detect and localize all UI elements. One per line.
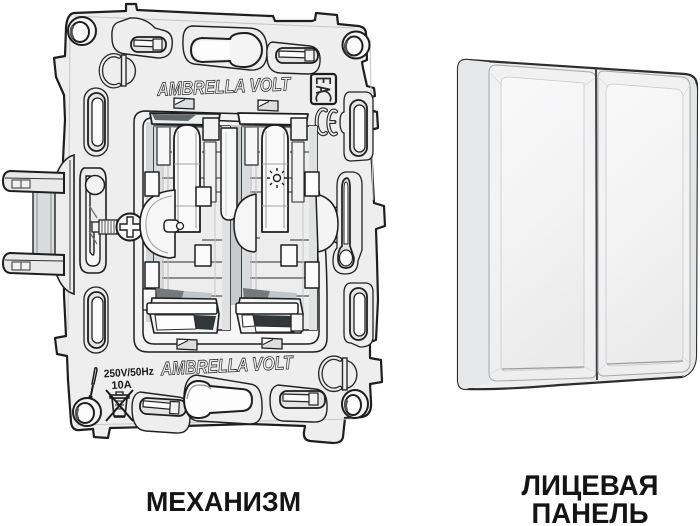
svg-text:10A: 10A <box>111 379 132 392</box>
svg-text:МЕХАНИЗМ: МЕХАНИЗМ <box>146 486 301 517</box>
svg-text:ПАНЕЛЬ: ПАНЕЛЬ <box>532 498 649 526</box>
